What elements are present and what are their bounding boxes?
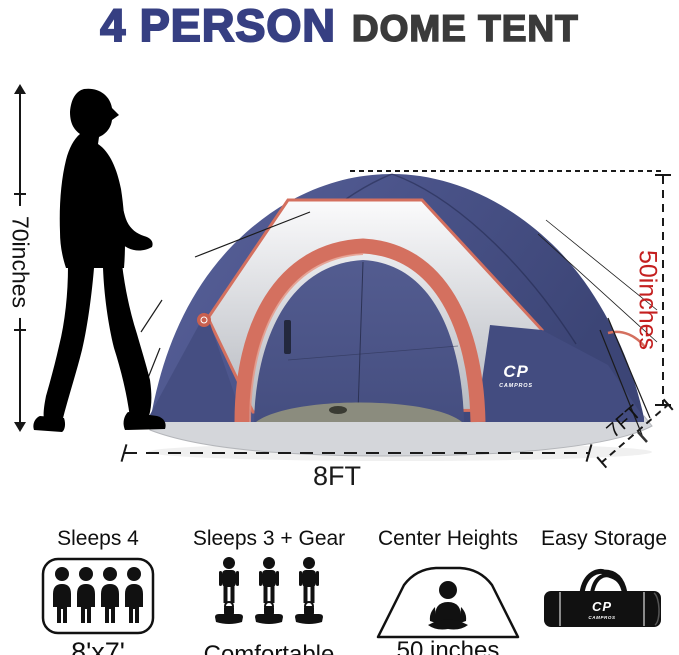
center-height-pointer-line: [350, 170, 664, 172]
four-person-capacity-icon: [41, 557, 155, 635]
title-highlight: 4 PERSON: [100, 0, 336, 52]
tent-illustration: CP CAMPROS: [138, 160, 660, 468]
width-label: 8FT: [277, 461, 397, 492]
width-line: [124, 452, 590, 454]
feature-label: Easy Storage: [541, 527, 667, 551]
feature-sleeps-4: Sleeps 4: [22, 527, 174, 655]
title-rest: DOME TENT: [352, 8, 579, 50]
feature-sleeps-3-gear: Sleeps 3 + Gear: [188, 527, 350, 655]
bag-brand-logo: CP: [592, 599, 612, 614]
feature-easy-storage: Easy Storage CP CAMPROS: [533, 527, 675, 633]
feature-center-heights: Center Heights 50 inches: [366, 527, 530, 655]
feature-sublabel: 8'x7': [71, 637, 125, 655]
tent-zipper: [284, 320, 291, 354]
tick-mark: [655, 174, 671, 176]
center-height-label: 50inches: [633, 250, 662, 350]
tent-badge-icon: [197, 313, 211, 327]
feature-label: Sleeps 4: [57, 527, 139, 551]
page-title: 4 PERSON DOME TENT: [0, 0, 679, 48]
center-height-line: [662, 176, 664, 404]
product-infographic: 4 PERSON DOME TENT 70inches: [0, 0, 679, 655]
feature-label: Center Heights: [378, 527, 518, 551]
storage-bag-icon: CP CAMPROS: [540, 565, 668, 633]
walking-man-silhouette: [24, 84, 174, 436]
tent-brand-name: CAMPROS: [499, 383, 533, 389]
three-person-gear-icon: [194, 557, 344, 633]
tent-height-icon: [372, 557, 524, 641]
tent-stake: [638, 432, 647, 442]
tent-brand-logo: CP: [503, 362, 529, 381]
feature-sublabel: Comfortable: [204, 641, 335, 655]
feature-sublabel: 50 inches: [397, 637, 500, 655]
bag-brand-name: CAMPROS: [588, 615, 615, 620]
feature-label: Sleeps 3 + Gear: [193, 527, 345, 551]
